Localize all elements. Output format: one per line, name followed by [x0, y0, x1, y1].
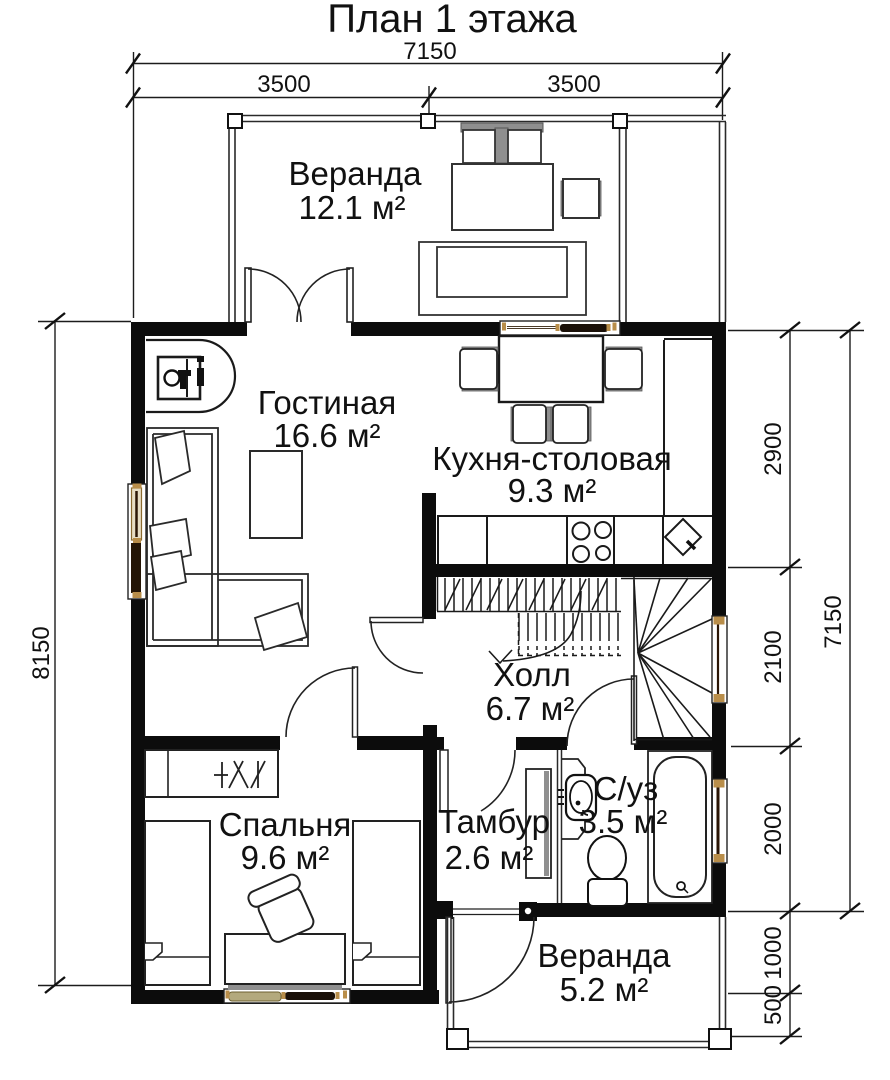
svg-text:2100: 2100	[760, 630, 787, 683]
svg-text:Тамбур: Тамбур	[438, 803, 550, 840]
svg-text:1000: 1000	[760, 926, 787, 979]
svg-text:5.2 м²: 5.2 м²	[560, 971, 649, 1008]
svg-text:Холл: Холл	[493, 656, 571, 693]
svg-text:9.6 м²: 9.6 м²	[241, 839, 330, 876]
svg-text:План 1 этажа: План 1 этажа	[327, 0, 577, 41]
svg-text:3.5 м²: 3.5 м²	[579, 803, 668, 840]
svg-text:С/уз: С/уз	[594, 770, 659, 807]
svg-text:12.1 м²: 12.1 м²	[298, 189, 405, 226]
svg-text:2.6 м²: 2.6 м²	[445, 839, 534, 876]
svg-text:Спальня: Спальня	[219, 806, 352, 843]
svg-text:Веранда: Веранда	[289, 155, 423, 192]
svg-text:2000: 2000	[760, 802, 787, 855]
svg-text:500: 500	[760, 985, 787, 1025]
svg-text:3500: 3500	[257, 71, 310, 98]
svg-text:Веранда: Веранда	[538, 937, 672, 974]
svg-text:9.3 м²: 9.3 м²	[508, 472, 597, 509]
svg-text:6.7 м²: 6.7 м²	[486, 690, 575, 727]
svg-text:3500: 3500	[547, 71, 600, 98]
svg-text:8150: 8150	[28, 626, 55, 679]
svg-text:Гостиная: Гостиная	[258, 384, 397, 421]
svg-text:2900: 2900	[760, 422, 787, 475]
svg-text:7150: 7150	[820, 595, 847, 648]
svg-text:16.6 м²: 16.6 м²	[273, 417, 380, 454]
svg-text:7150: 7150	[403, 38, 456, 65]
